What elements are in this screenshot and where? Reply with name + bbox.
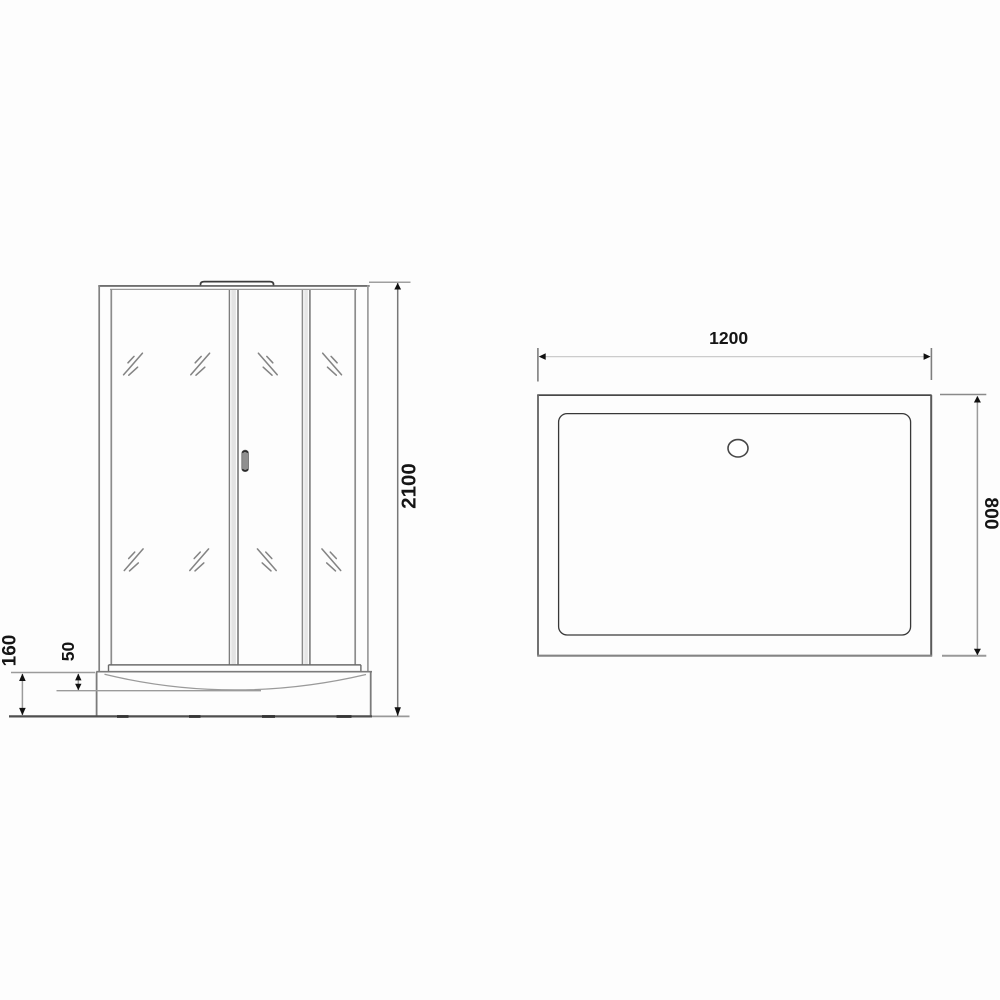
svg-text:1200: 1200 bbox=[709, 328, 748, 348]
svg-text:50: 50 bbox=[58, 642, 78, 662]
svg-text:800: 800 bbox=[980, 497, 1000, 529]
svg-text:160: 160 bbox=[0, 635, 21, 667]
svg-text:2100: 2100 bbox=[397, 463, 420, 509]
